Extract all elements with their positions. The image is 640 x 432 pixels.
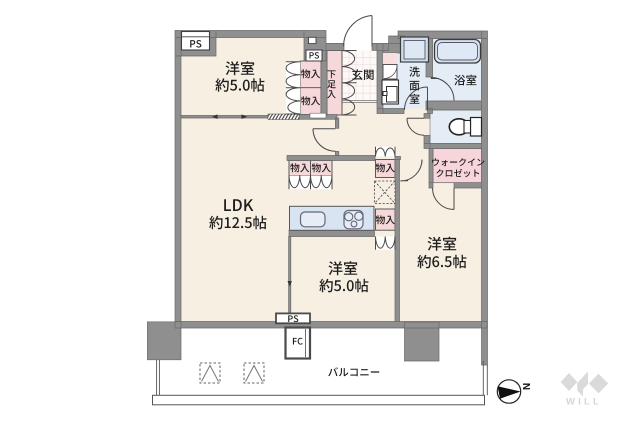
svg-text:WILL: WILL bbox=[566, 397, 602, 408]
svg-text:N: N bbox=[520, 383, 531, 390]
